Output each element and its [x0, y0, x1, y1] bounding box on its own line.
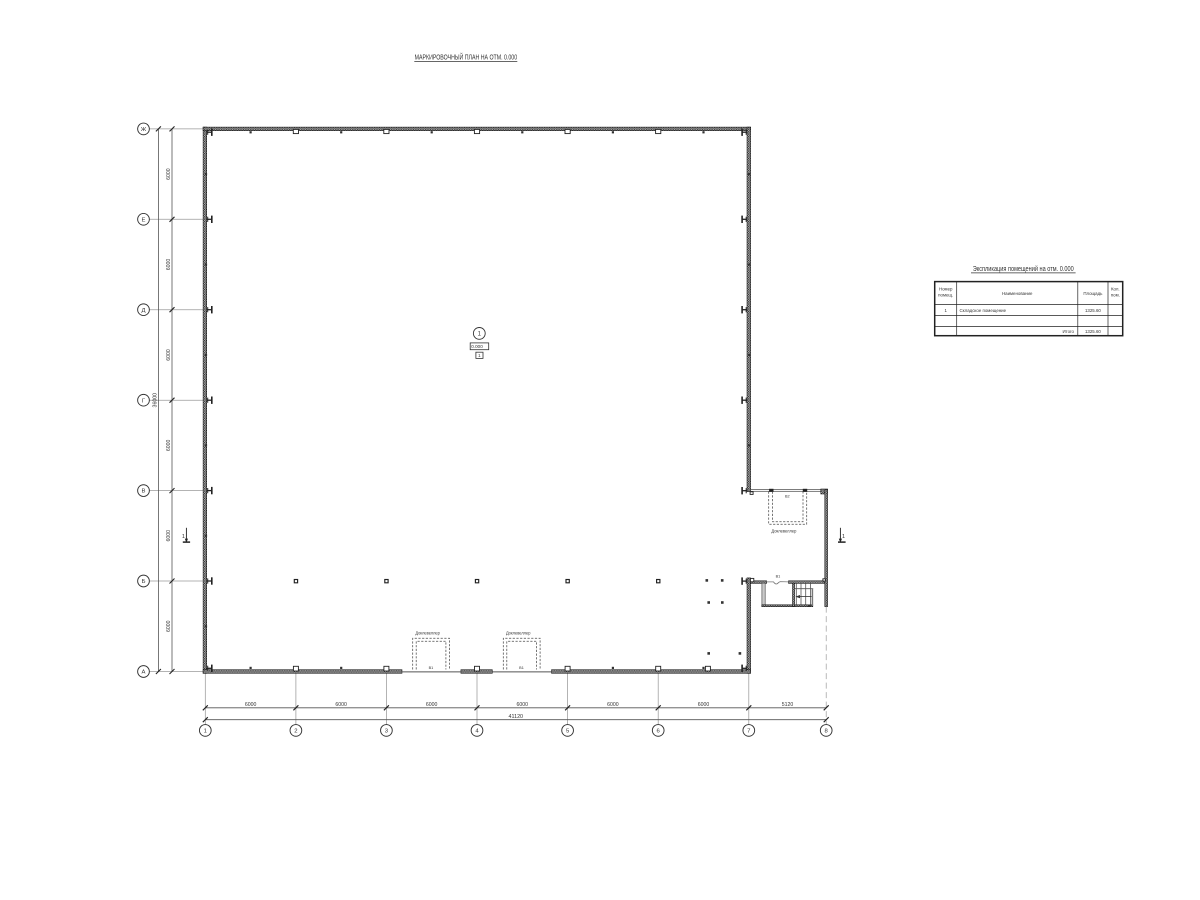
svg-text:Доклевеллер: Доклевеллер [771, 529, 796, 534]
svg-text:2: 2 [294, 729, 297, 735]
svg-text:1325.60: 1325.60 [1085, 329, 1101, 334]
svg-text:Д: Д [142, 308, 146, 314]
svg-text:6000: 6000 [166, 349, 172, 361]
svg-text:6000: 6000 [166, 168, 172, 180]
svg-text:В2: В2 [785, 494, 790, 498]
svg-text:Кол.: Кол. [1111, 287, 1120, 292]
svg-text:В1: В1 [519, 666, 524, 670]
svg-text:6000: 6000 [166, 620, 172, 632]
svg-text:пом.: пом. [1111, 292, 1120, 297]
svg-text:36000: 36000 [153, 393, 159, 408]
svg-text:Ж: Ж [141, 127, 147, 133]
svg-text:1: 1 [842, 534, 845, 540]
svg-text:МАРКИРОВОЧНЫЙ ПЛАН НА ОТМ. 0.0: МАРКИРОВОЧНЫЙ ПЛАН НА ОТМ. 0.000 [415, 53, 518, 62]
svg-text:Экспликация помещений на отм.: Экспликация помещений на отм. 0.000 [973, 265, 1074, 273]
svg-text:В: В [142, 489, 146, 495]
svg-text:А: А [142, 670, 146, 676]
svg-text:Номер: Номер [939, 287, 953, 292]
svg-text:7: 7 [747, 729, 750, 735]
svg-text:В1: В1 [429, 666, 434, 670]
svg-text:В1: В1 [776, 574, 781, 578]
svg-text:6000: 6000 [426, 702, 438, 708]
svg-text:6000: 6000 [245, 702, 257, 708]
svg-text:1: 1 [204, 729, 207, 735]
svg-text:Итого: Итого [1062, 329, 1074, 334]
svg-text:6000: 6000 [698, 702, 710, 708]
svg-text:5120: 5120 [782, 702, 794, 708]
svg-text:Е: Е [142, 217, 146, 223]
svg-text:6000: 6000 [166, 530, 172, 542]
svg-text:Наименование: Наименование [1002, 291, 1033, 296]
svg-text:Площадь: Площадь [1083, 291, 1103, 296]
svg-text:41120: 41120 [509, 714, 524, 720]
svg-text:Доклевеллер: Доклевеллер [415, 631, 440, 636]
svg-text:Складское помещение: Складское помещение [960, 308, 1007, 313]
svg-text:6000: 6000 [335, 702, 347, 708]
svg-text:Б: Б [142, 579, 146, 585]
svg-text:6000: 6000 [166, 439, 172, 451]
svg-text:помещ.: помещ. [938, 292, 953, 297]
svg-text:6000: 6000 [166, 259, 172, 271]
svg-text:Доклевеллер: Доклевеллер [506, 631, 531, 636]
svg-text:6000: 6000 [607, 702, 619, 708]
svg-text:0.000: 0.000 [471, 344, 483, 349]
svg-text:6000: 6000 [517, 702, 529, 708]
svg-text:1325.60: 1325.60 [1085, 308, 1101, 313]
svg-text:1: 1 [182, 534, 185, 540]
